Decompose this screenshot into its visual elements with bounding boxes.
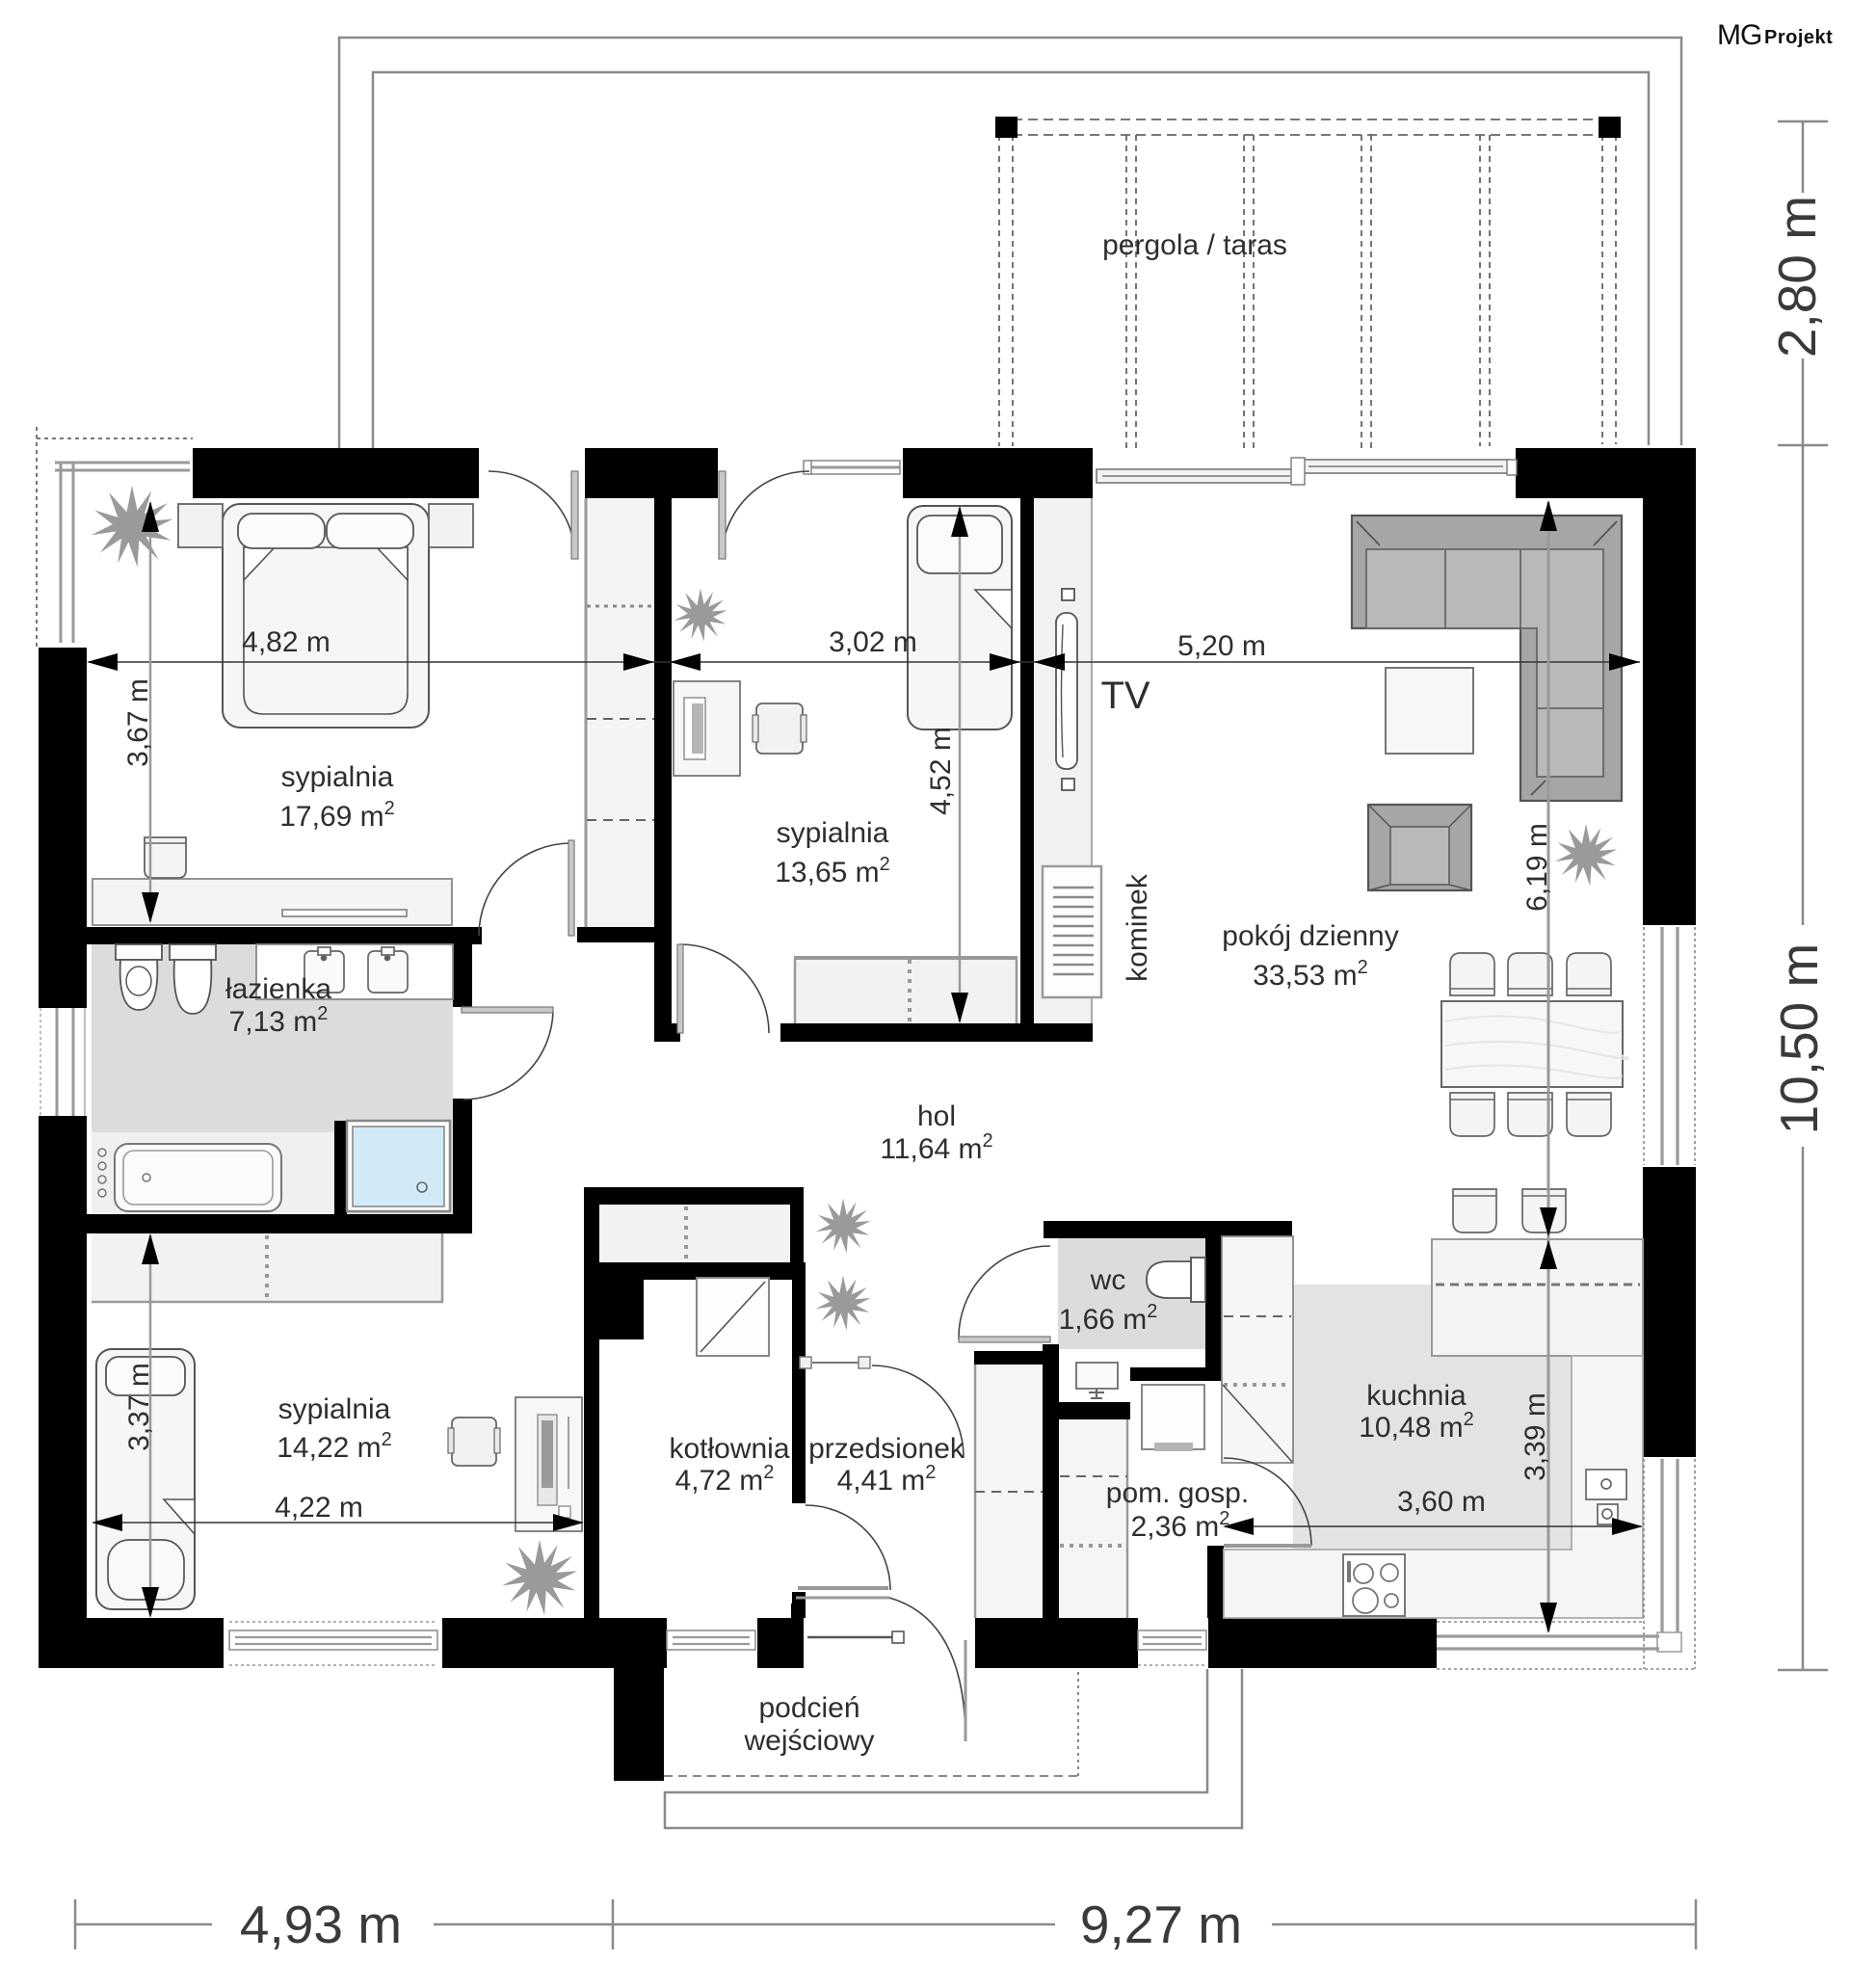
svg-text:kotłownia: kotłownia: [669, 1433, 789, 1465]
svg-text:łazienka: łazienka: [225, 973, 331, 1005]
svg-text:wc: wc: [1090, 1264, 1126, 1296]
svg-text:kuchnia: kuchnia: [1366, 1380, 1467, 1412]
svg-text:17,69 m2: 17,69 m2: [279, 798, 395, 833]
svg-text:4,72 m2: 4,72 m2: [675, 1462, 775, 1497]
svg-text:TV: TV: [1100, 675, 1150, 717]
svg-text:MG: MG: [1717, 19, 1761, 51]
svg-text:pergola / taras: pergola / taras: [1102, 229, 1287, 261]
svg-text:9,27 m: 9,27 m: [1080, 1895, 1242, 1954]
svg-text:pokój dzienny: pokój dzienny: [1222, 920, 1398, 952]
svg-text:4,93 m: 4,93 m: [240, 1895, 402, 1954]
svg-text:przedsionek: przedsionek: [808, 1433, 965, 1465]
svg-text:kominek: kominek: [1122, 873, 1153, 982]
svg-text:2,80 m: 2,80 m: [1767, 196, 1827, 358]
svg-text:6,19 m: 6,19 m: [1521, 823, 1553, 912]
svg-text:sypialnia: sypialnia: [281, 761, 394, 793]
svg-text:3,60 m: 3,60 m: [1397, 1486, 1486, 1518]
svg-text:3,39 m: 3,39 m: [1520, 1392, 1551, 1481]
svg-text:podcień: podcień: [758, 1692, 859, 1724]
svg-text:wejściowy: wejściowy: [743, 1725, 874, 1757]
svg-text:4,22 m: 4,22 m: [275, 1492, 363, 1524]
svg-text:33,53 m2: 33,53 m2: [1253, 957, 1368, 992]
svg-text:2,36 m2: 2,36 m2: [1131, 1508, 1230, 1543]
svg-text:7,13 m2: 7,13 m2: [229, 1003, 329, 1038]
svg-text:5,20 m: 5,20 m: [1177, 630, 1266, 662]
svg-text:hol: hol: [917, 1100, 956, 1132]
svg-text:pom. gosp.: pom. gosp.: [1106, 1477, 1249, 1509]
svg-text:11,64 m2: 11,64 m2: [880, 1130, 992, 1165]
svg-text:Projekt: Projekt: [1764, 27, 1833, 48]
svg-text:3,37 m: 3,37 m: [123, 1363, 155, 1451]
svg-text:10,50 m: 10,50 m: [1769, 943, 1829, 1135]
svg-text:4,41 m2: 4,41 m2: [837, 1462, 937, 1497]
svg-text:10,48 m2: 10,48 m2: [1359, 1409, 1474, 1444]
svg-text:sypialnia: sypialnia: [777, 817, 889, 849]
svg-text:1,66 m2: 1,66 m2: [1059, 1301, 1158, 1336]
svg-text:14,22 m2: 14,22 m2: [277, 1429, 392, 1464]
svg-text:4,82 m: 4,82 m: [242, 626, 330, 658]
svg-text:4,52 m: 4,52 m: [925, 727, 957, 815]
svg-text:13,65 m2: 13,65 m2: [775, 854, 890, 888]
svg-text:sypialnia: sypialnia: [278, 1393, 391, 1425]
svg-text:3,02 m: 3,02 m: [829, 626, 917, 658]
svg-text:3,67 m: 3,67 m: [122, 678, 154, 767]
